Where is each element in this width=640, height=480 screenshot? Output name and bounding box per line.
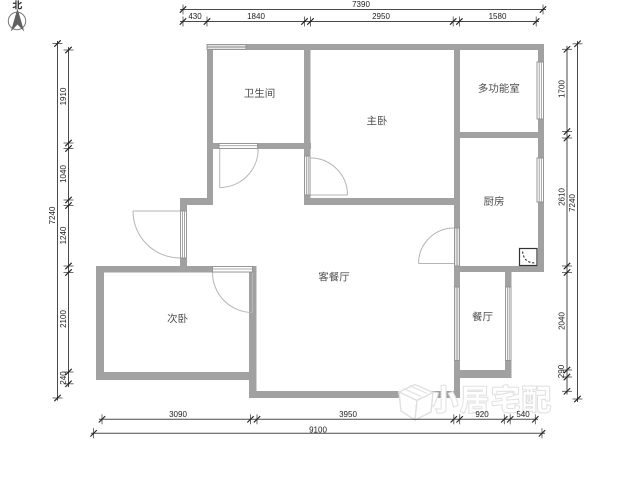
svg-text:920: 920: [475, 410, 489, 419]
svg-text:1040: 1040: [59, 165, 68, 183]
svg-text:2610: 2610: [558, 188, 567, 206]
svg-text:1700: 1700: [558, 80, 567, 98]
svg-text:1840: 1840: [247, 12, 265, 21]
svg-text:7390: 7390: [352, 0, 370, 9]
svg-text:3950: 3950: [339, 410, 357, 419]
svg-text:430: 430: [188, 12, 202, 21]
svg-text:1580: 1580: [489, 12, 507, 21]
svg-text:240: 240: [59, 371, 68, 385]
svg-text:2950: 2950: [372, 12, 390, 21]
svg-text:290: 290: [557, 364, 566, 378]
svg-text:9100: 9100: [309, 426, 327, 435]
svg-text:3090: 3090: [169, 410, 187, 419]
svg-text:7240: 7240: [48, 206, 57, 224]
svg-text:2100: 2100: [59, 310, 68, 328]
svg-text:540: 540: [516, 410, 530, 419]
svg-text:1240: 1240: [59, 226, 68, 244]
svg-text:1910: 1910: [59, 87, 68, 105]
svg-text:7240: 7240: [568, 194, 577, 212]
svg-text:2040: 2040: [558, 312, 567, 330]
